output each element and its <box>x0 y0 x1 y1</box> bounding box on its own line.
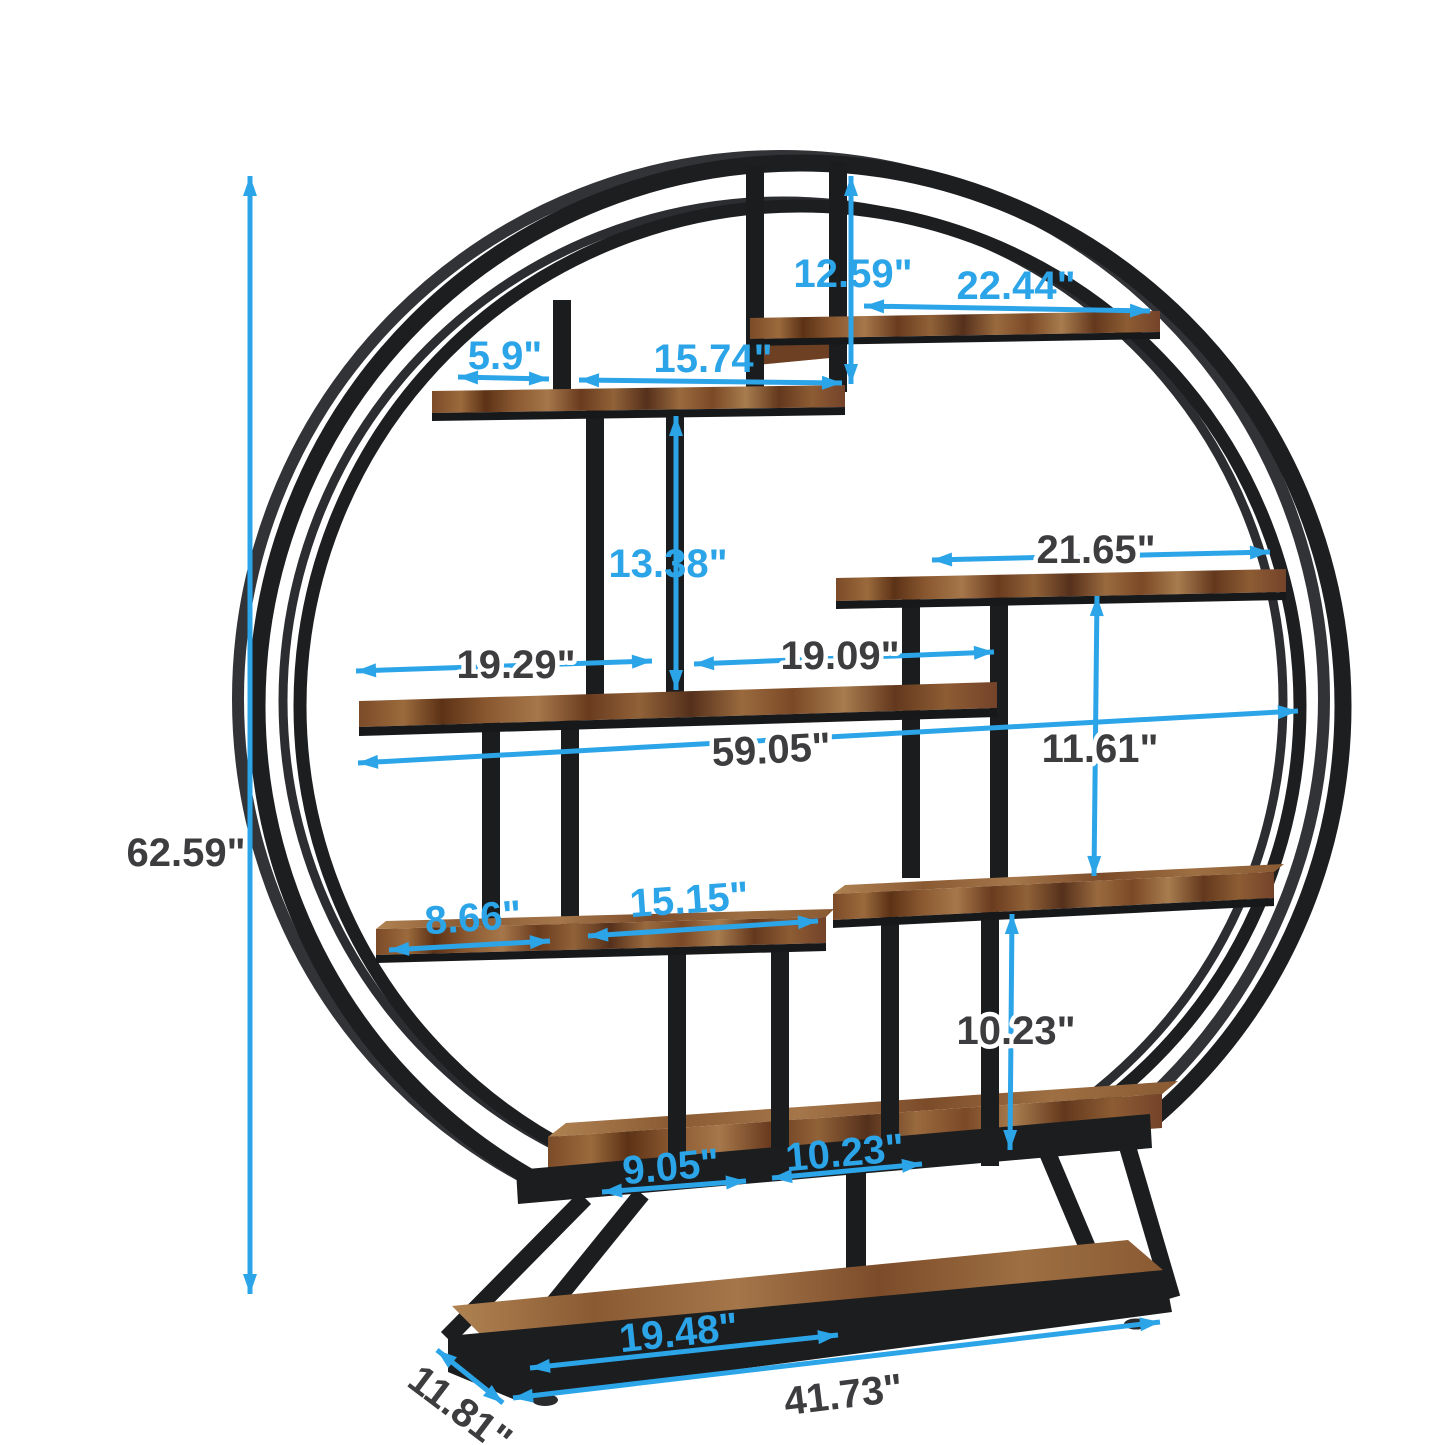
shelf-mid-right <box>836 569 1286 609</box>
shelf-lower-right <box>833 864 1284 928</box>
dim-label-mid-left-span: 19.29" <box>456 643 575 687</box>
dim-label-mid-right-span: 19.09" <box>780 634 899 678</box>
dim-label-upper-left-gap: 5.9" <box>468 334 543 378</box>
dim-label-upper-shelf-length: 15.74" <box>653 337 772 381</box>
dim-label-base-width: 41.73" <box>782 1366 906 1424</box>
dim-label-right-clearance-upper: 11.61" <box>1042 727 1159 771</box>
dim-label-right-clearance-lower: 10.23" <box>956 1009 1075 1053</box>
dim-label-bottom-left-span: 9.05" <box>621 1141 721 1193</box>
metal-post <box>586 410 604 702</box>
metal-post <box>561 702 579 930</box>
dim-label-right-shelf-length: 21.65" <box>1036 528 1155 572</box>
dim-label-overall-height: 62.59" <box>126 831 245 875</box>
dim-label-lower-left-gap: 8.66" <box>423 893 523 944</box>
dim-label-top-clearance: 12.59" <box>793 252 912 296</box>
dim-label-lower-shelf-length: 15.15" <box>628 874 750 926</box>
dim-label-top-shelf-length: 22.44" <box>956 264 1075 308</box>
metal-post <box>668 948 686 1174</box>
product-dimension-image: 12.59" 22.44" 5.9" 15.74" 13.38" 8.66" 1… <box>0 0 1445 1445</box>
shelf-top-right <box>750 311 1160 346</box>
dim-label-mid-clearance: 13.38" <box>608 542 727 586</box>
dim-label-bottom-right-span: 10.23" <box>784 1126 906 1180</box>
bookshelf-dimension-diagram: 12.59" 22.44" 5.9" 15.74" 13.38" 8.66" 1… <box>0 0 1445 1445</box>
metal-post <box>553 300 571 392</box>
shelf-upper-left <box>432 385 845 421</box>
dim-label-total-shelf-width: 59.05" <box>711 725 832 775</box>
metal-post <box>990 590 1008 878</box>
